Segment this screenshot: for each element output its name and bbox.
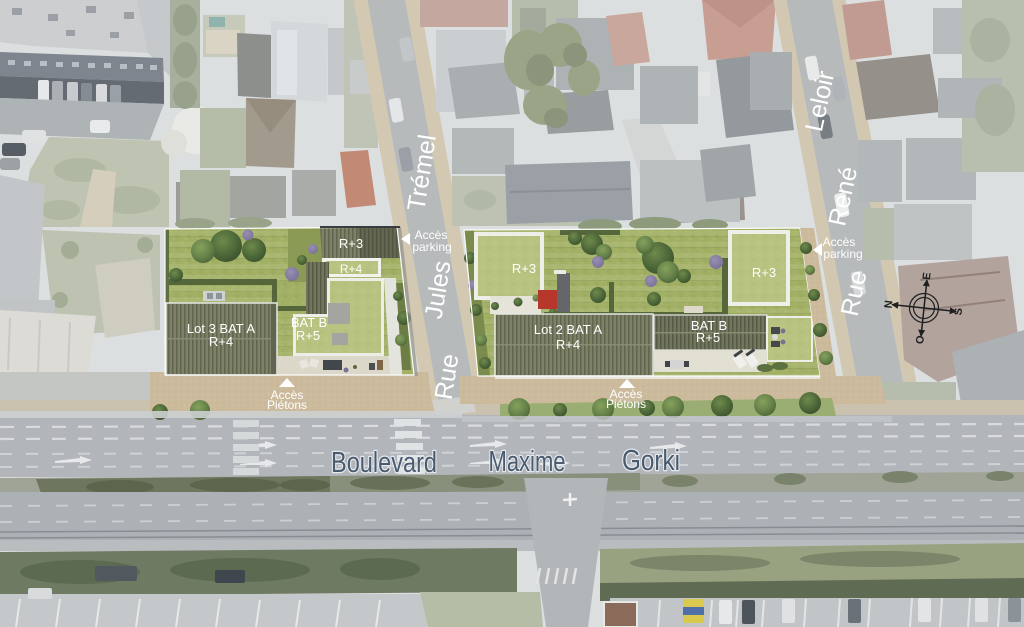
svg-text:R+3: R+3 [339,236,363,251]
svg-text:R+4: R+4 [556,337,580,352]
svg-text:R+5: R+5 [696,330,720,345]
svg-text:R+3: R+3 [512,261,536,276]
svg-text:E: E [921,272,934,281]
svg-text:parking: parking [412,240,451,254]
svg-text:R+3: R+3 [752,265,776,280]
svg-text:R+4: R+4 [340,262,363,276]
svg-text:Lot 2 BAT A: Lot 2 BAT A [534,322,603,337]
svg-text:Gorki: Gorki [622,445,680,477]
svg-text:Piétons: Piétons [267,398,307,412]
svg-text:Maxime: Maxime [489,446,566,478]
svg-text:S: S [952,307,965,316]
svg-text:parking: parking [823,247,862,261]
svg-text:Boulevard: Boulevard [331,447,437,479]
svg-text:O: O [914,334,927,344]
svg-text:N: N [883,300,896,309]
svg-text:R+4: R+4 [209,334,233,349]
svg-text:R+5: R+5 [296,328,320,343]
svg-text:Piétons: Piétons [606,397,646,411]
